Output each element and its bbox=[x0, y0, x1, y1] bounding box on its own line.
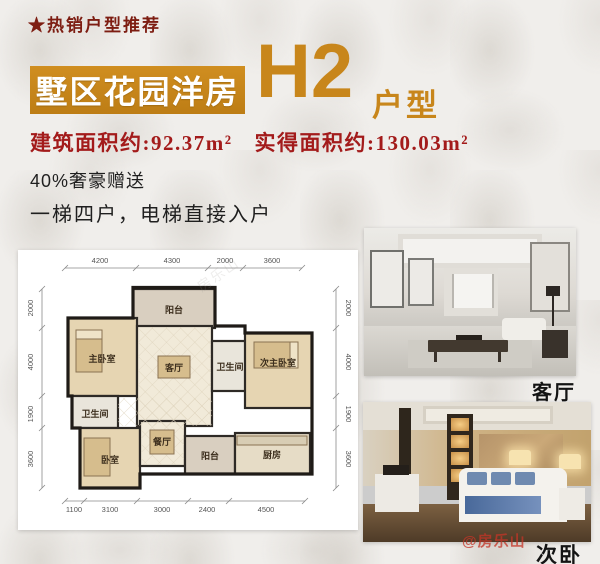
dresser-decor bbox=[383, 465, 409, 475]
floorplan-panel: 4200 4300 2000 3600 1100 3100 3000 2400 … bbox=[18, 250, 358, 530]
living-room-label: 客厅 bbox=[164, 362, 183, 373]
dim-bottom-3: 3000 bbox=[154, 505, 171, 514]
living-room-caption: 客厅 bbox=[478, 376, 576, 405]
dim-right-2: 4000 bbox=[344, 354, 353, 371]
pillow bbox=[491, 472, 511, 485]
bedroom-caption: 次卧 bbox=[488, 539, 582, 564]
title-banner: 墅区花园洋房 bbox=[30, 66, 245, 114]
dim-top-2: 4300 bbox=[164, 256, 181, 265]
lit-shelf bbox=[451, 435, 469, 448]
bathroom-left-label: 卫生间 bbox=[81, 408, 108, 419]
dim-left-3: 1900 bbox=[26, 406, 35, 423]
dim-bottom-2: 3100 bbox=[102, 505, 119, 514]
dining-room-label: 餐厅 bbox=[152, 436, 171, 447]
bedroom-photo bbox=[363, 402, 591, 542]
dim-top-4: 3600 bbox=[264, 256, 281, 265]
ceiling-recess bbox=[423, 406, 553, 424]
wall-art bbox=[370, 250, 404, 308]
floor-lamp bbox=[546, 286, 560, 296]
sofa bbox=[502, 318, 546, 340]
dim-left-4: 3600 bbox=[26, 451, 35, 468]
window bbox=[452, 274, 494, 308]
balcony-top-label: 阳台 bbox=[165, 304, 183, 315]
bedroom-label: 卧室 bbox=[101, 454, 119, 465]
dim-left-1: 2000 bbox=[26, 300, 35, 317]
lamp-pole bbox=[552, 296, 554, 326]
pillow bbox=[515, 472, 535, 485]
dim-left-2: 4000 bbox=[26, 354, 35, 371]
unit-type-label: 户型 bbox=[372, 80, 440, 125]
unit-code: H2 bbox=[256, 34, 353, 110]
dim-bottom-1: 1100 bbox=[66, 505, 82, 514]
bed-runner bbox=[465, 496, 541, 514]
lit-shelf bbox=[451, 452, 469, 465]
bedside-lamp bbox=[509, 450, 531, 465]
actual-area-text: 实得面积约:130.03m² bbox=[255, 127, 470, 157]
kitchen-label: 厨房 bbox=[263, 449, 281, 460]
second-master-label: 次主卧室 bbox=[260, 357, 296, 368]
wall-art bbox=[408, 258, 434, 306]
master-bedroom-label: 主卧室 bbox=[88, 353, 115, 364]
wall-panel bbox=[530, 242, 570, 312]
pillow bbox=[467, 472, 487, 485]
side-table bbox=[542, 330, 568, 358]
dresser bbox=[375, 474, 419, 512]
dim-right-1: 2000 bbox=[344, 300, 353, 317]
bedside-lamp bbox=[559, 454, 581, 469]
promo-tagline: ★热销户型推荐 bbox=[28, 11, 161, 36]
bench-decor bbox=[456, 335, 482, 340]
living-room-photo bbox=[364, 228, 576, 376]
dim-bottom-4: 2400 bbox=[199, 505, 216, 514]
lit-shelf bbox=[451, 418, 469, 431]
balcony-bottom-label: 阳台 bbox=[201, 450, 219, 461]
dim-right-4: 3600 bbox=[344, 451, 353, 468]
bench-leg bbox=[498, 352, 501, 362]
bonus-text: 40%奢豪赠送 bbox=[30, 167, 145, 193]
bench-leg bbox=[434, 352, 437, 362]
bathroom-mid-label: 卫生间 bbox=[216, 361, 243, 372]
floorplan-drawing: 4200 4300 2000 3600 1100 3100 3000 2400 … bbox=[18, 250, 358, 530]
built-area-text: 建筑面积约:92.37m² bbox=[30, 127, 233, 157]
flyer-page: ★热销户型推荐 墅区花园洋房 H2 户型 建筑面积约:92.37m² 实得面积约… bbox=[0, 0, 600, 564]
dim-right-3: 1900 bbox=[344, 406, 353, 423]
nightstand bbox=[559, 488, 585, 520]
feature-text: 一梯四户，电梯直接入户 bbox=[30, 198, 272, 227]
area-info-line: 建筑面积约:92.37m² 实得面积约:130.03m² bbox=[30, 127, 469, 157]
coffee-bench bbox=[428, 340, 508, 352]
dim-top-1: 4200 bbox=[92, 256, 109, 265]
dim-bottom-5: 4500 bbox=[258, 505, 275, 514]
